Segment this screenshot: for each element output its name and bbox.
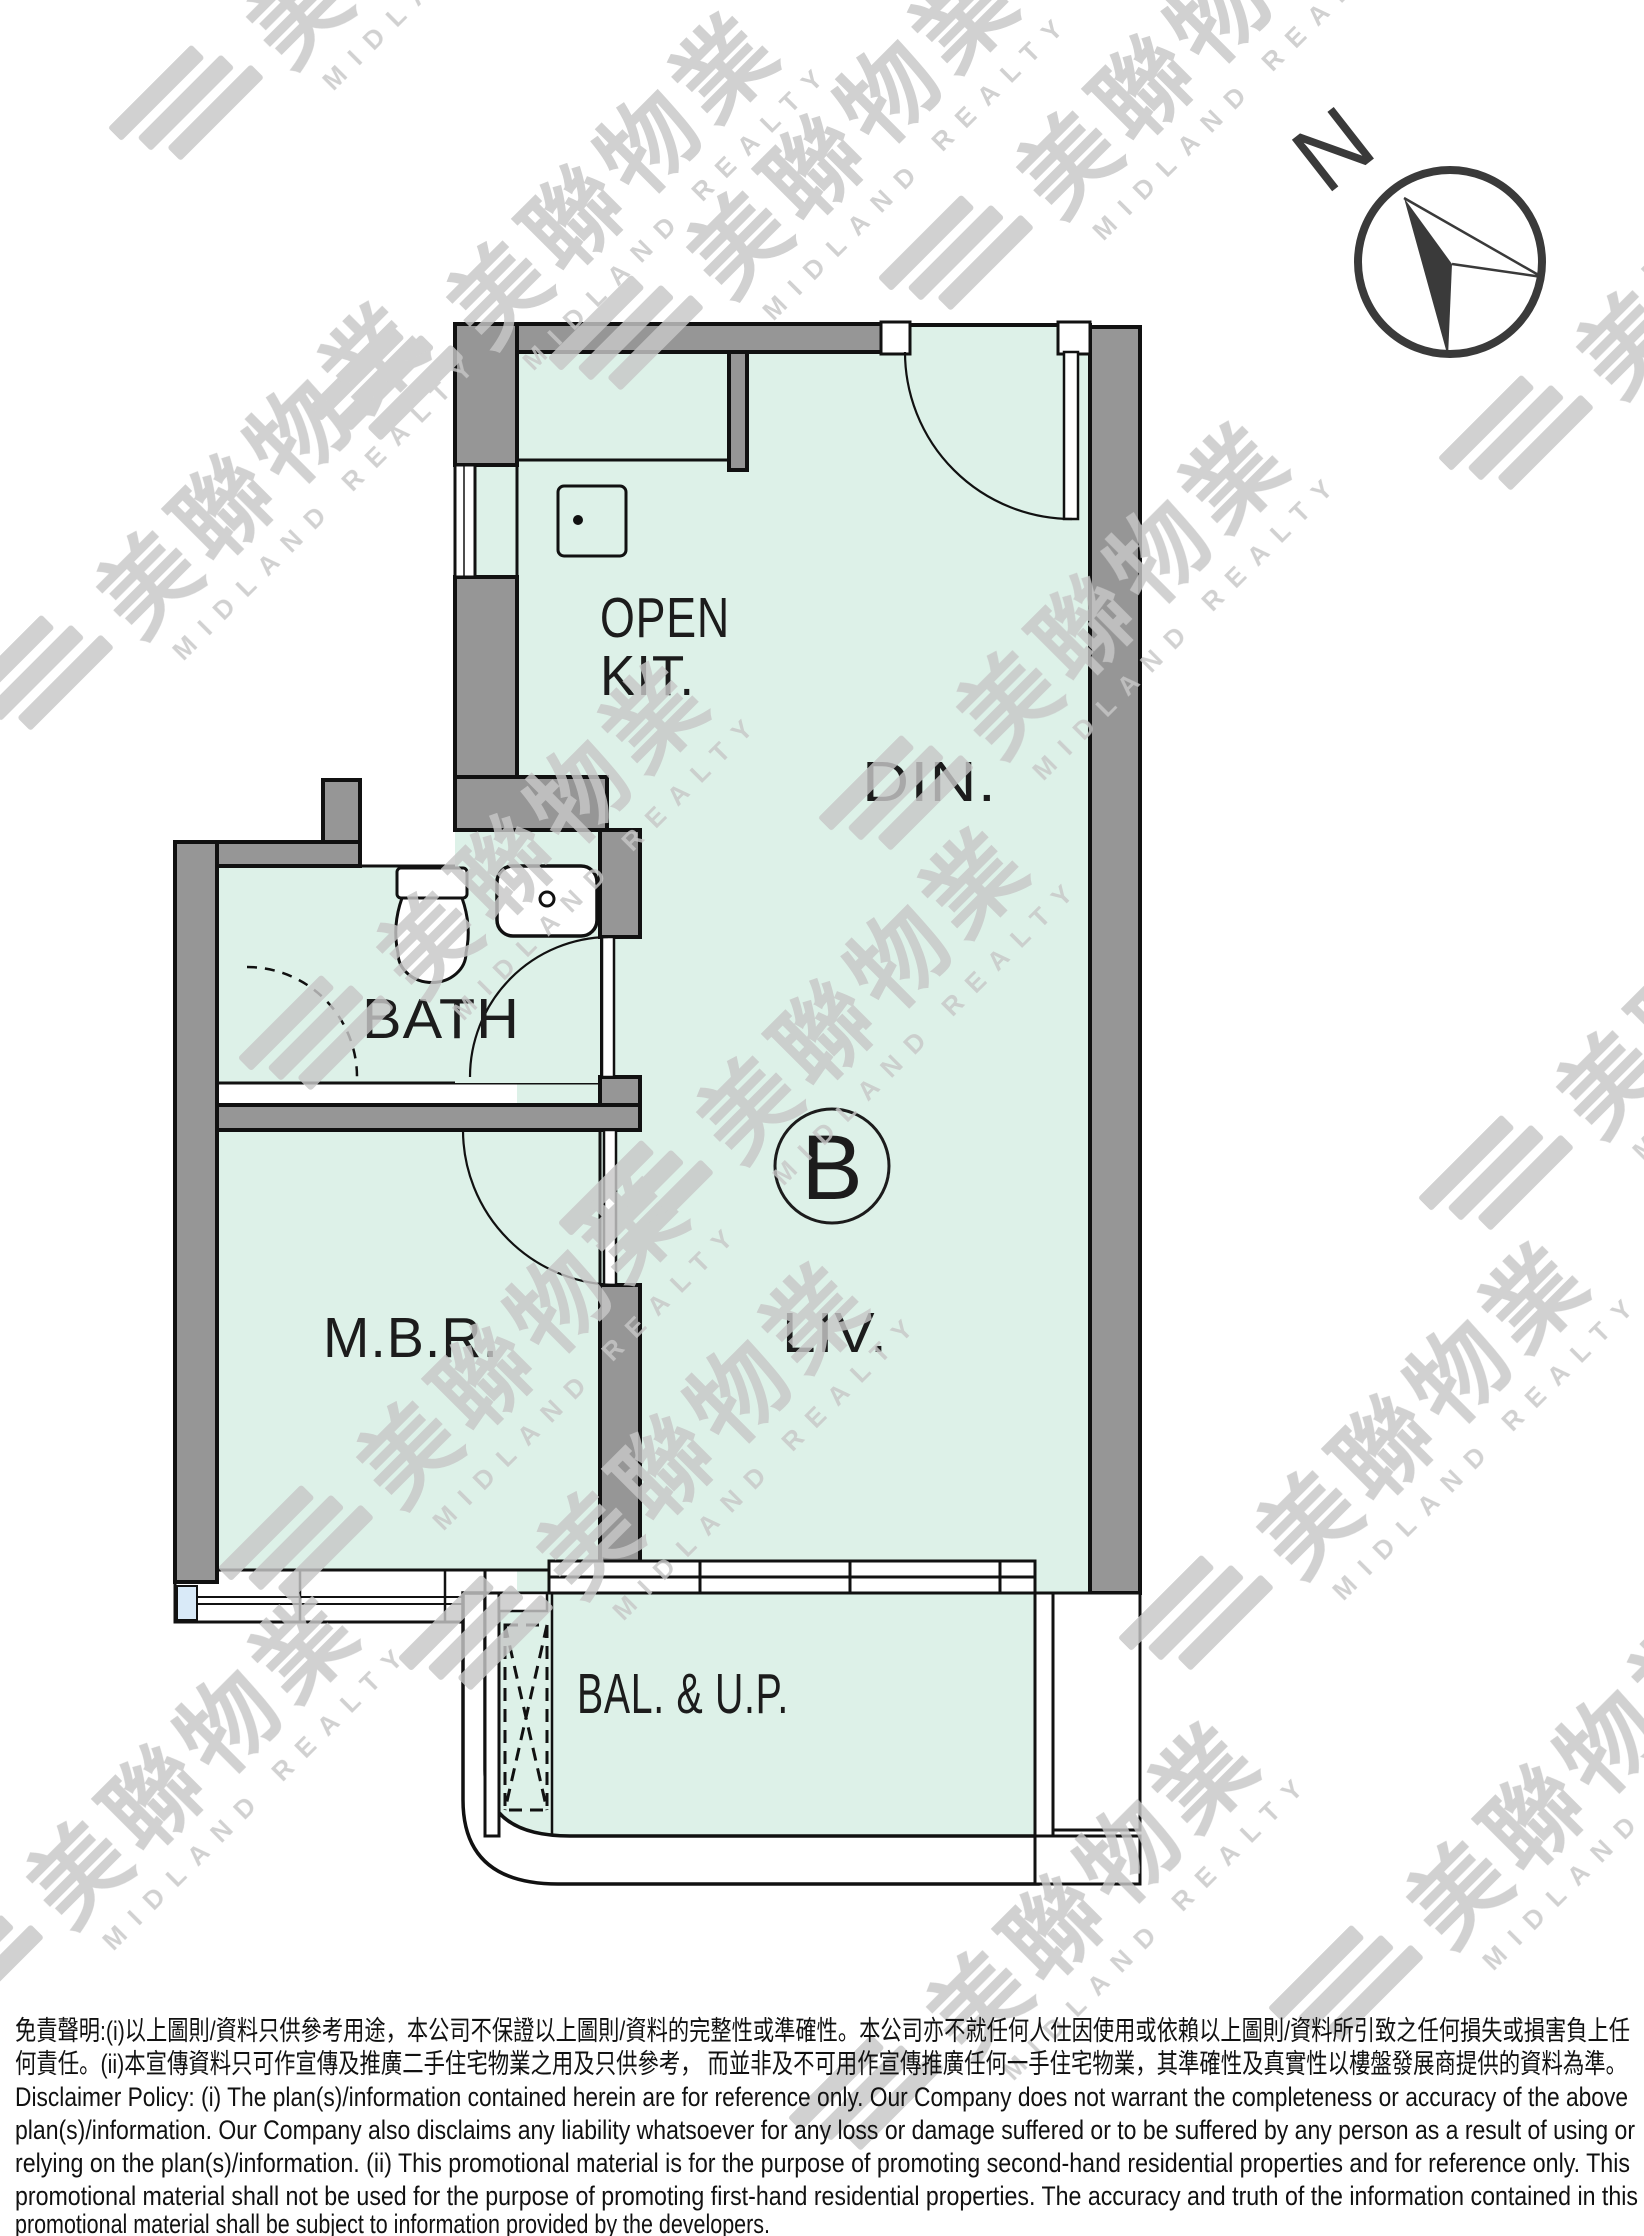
disclaimer-line-3: Disclaimer Policy: (i) The plan(s)/infor… (15, 2082, 1628, 2112)
wall-kitchen-left-lower (455, 577, 517, 777)
label-open-kitchen-line1: OPEN (600, 586, 730, 650)
kitchen-window (455, 465, 475, 577)
disclaimer: 免責聲明:(i)以上圖則/資料只供參考用途，本公司不保證以上圖則/資料的完整性或… (15, 2016, 1638, 2236)
floor-plan-image: 美聯物業 MIDLAND REALTY (0, 0, 1644, 2236)
compass-icon: N (1274, 87, 1542, 357)
entry-door-leaf (1064, 352, 1078, 519)
label-balcony: BAL. & U.P. (577, 1662, 789, 1726)
floor-plan-page: 美聯物業 MIDLAND REALTY (0, 0, 1644, 2236)
wall-left-outer (175, 842, 217, 1582)
wall-kitchen-stub (729, 352, 747, 470)
bath-door-leaf (602, 937, 614, 1077)
balcony-right-wall (1035, 1593, 1053, 1836)
floor-window-recess (475, 465, 517, 577)
disclaimer-line-6: promotional material shall not be used f… (15, 2181, 1638, 2211)
disclaimer-line-7: promotional material shall be subject to… (15, 2209, 770, 2236)
wall-bath-step-h (217, 842, 360, 866)
disclaimer-line-4: plan(s)/information. Our Company also di… (15, 2115, 1635, 2145)
compass-north-label: N (1274, 87, 1393, 213)
window-glass (177, 1586, 197, 1620)
disclaimer-line-5: relying on the plan(s)/information. (ii)… (15, 2148, 1630, 2178)
wall-bath-step-v (323, 780, 360, 842)
wall-bath-bottom (217, 1105, 640, 1130)
disclaimer-line-2: 何責任。(ii)本宣傳資料只可作宣傳及推廣二手住宅物業之用及只供參考， 而並非及… (15, 2049, 1627, 2079)
disclaimer-line-1: 免責聲明:(i)以上圖則/資料只供參考用途，本公司不保證以上圖則/資料的完整性或… (15, 2016, 1630, 2046)
